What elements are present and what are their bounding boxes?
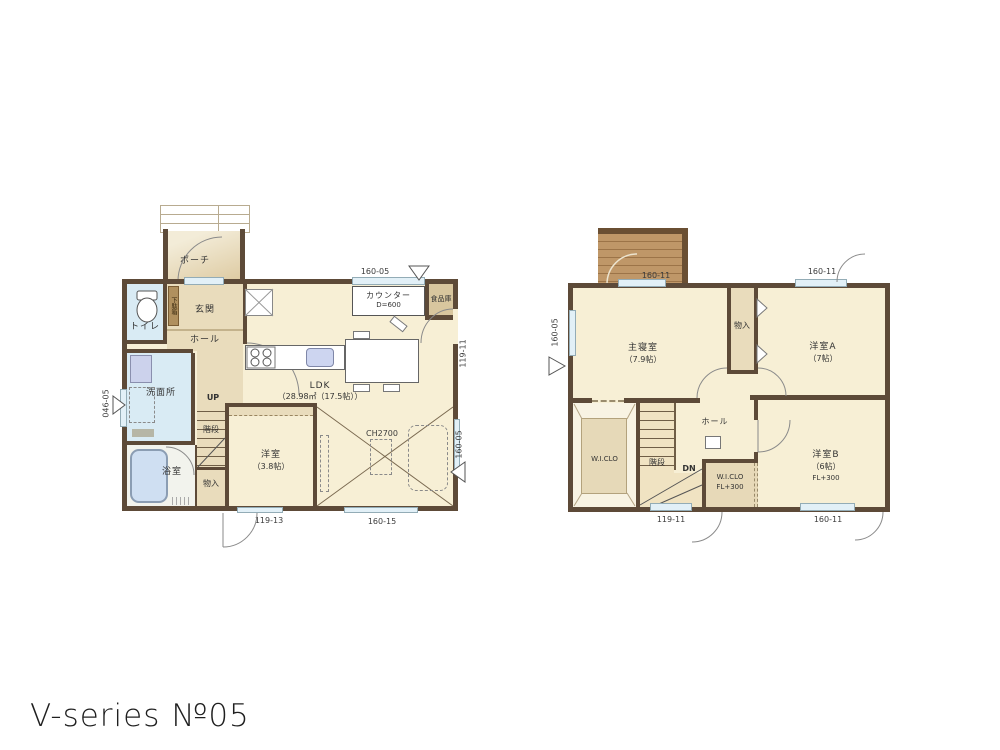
wall xyxy=(754,452,758,463)
chair xyxy=(353,331,370,339)
marker-triangle-icon xyxy=(548,356,566,376)
wall xyxy=(191,353,195,441)
wic-bottom-fl-label: FL+300 xyxy=(702,483,758,492)
dim-right-upper: 119-11 xyxy=(459,332,468,376)
counter-box: カウンター D=600 xyxy=(352,286,425,316)
door-arc-icon xyxy=(222,513,258,549)
window xyxy=(800,503,855,511)
window xyxy=(569,310,576,356)
sink xyxy=(306,348,334,367)
marker-triangle-icon xyxy=(112,395,126,415)
western-room-name: 洋室 xyxy=(261,450,281,460)
porch-label: ポーチ xyxy=(162,256,228,268)
door-arc-icon xyxy=(697,368,727,398)
door-arc-icon xyxy=(692,512,722,542)
door-arc-icon xyxy=(758,420,790,452)
counter-label: カウンター xyxy=(353,290,424,301)
wall xyxy=(122,340,167,344)
room-a-size: （7帖） xyxy=(808,354,837,363)
step-platform xyxy=(705,436,721,449)
master-bedroom-label: 主寝室（7.9帖） xyxy=(603,343,683,366)
door-arc-icon xyxy=(421,309,453,343)
room-b-name: 洋室B xyxy=(812,450,839,460)
living-table xyxy=(370,439,392,475)
toilet-icon xyxy=(134,289,160,325)
dim-left-2f: 160-05 xyxy=(551,311,560,355)
room-b-label: 洋室B（6帖）FL+300 xyxy=(786,450,866,485)
pantry-label: 食品庫 xyxy=(427,295,455,304)
wic-left-label: W.I.CLO xyxy=(573,455,636,464)
master-bedroom-size: （7.9帖） xyxy=(625,355,662,364)
door-gap xyxy=(453,309,458,344)
stairs-label: 階段 xyxy=(197,425,225,435)
entrance-door xyxy=(184,277,224,285)
chair xyxy=(383,384,400,392)
stove-icon xyxy=(247,347,275,368)
door-arc-icon xyxy=(837,254,865,282)
dim-right-lower: 160-05 xyxy=(455,423,464,467)
stairs-2f-label: 階段 xyxy=(640,458,674,468)
dim-bottom-left-2f: 119-11 xyxy=(647,515,695,524)
door-arc-icon xyxy=(855,512,883,540)
bath-mat xyxy=(132,429,154,437)
dim-left: 046-05 xyxy=(102,382,111,426)
bathroom-label: 浴室 xyxy=(150,467,194,479)
porch-step-divider xyxy=(218,205,219,231)
genkan-label: 玄関 xyxy=(180,305,230,317)
room-a-name: 洋室A xyxy=(809,342,836,352)
washroom-label: 洗面所 xyxy=(132,388,190,400)
wic-bottom-label: W.I.CLO xyxy=(702,473,758,482)
door-arc-icon xyxy=(758,368,786,396)
wall xyxy=(754,400,758,420)
page-title: V-series №05 xyxy=(30,698,250,734)
room-a-label: 洋室A（7帖） xyxy=(783,342,863,365)
ceiling-height-label: CH2700 xyxy=(360,429,404,438)
open-wall-dashed xyxy=(592,400,624,402)
marker-triangle-icon xyxy=(408,265,430,281)
dim-top: 160-05 xyxy=(345,267,405,276)
wall xyxy=(240,229,245,284)
bifold-door-icon xyxy=(756,298,768,318)
window xyxy=(618,279,666,287)
second-floor-plan: 160-11 物入 主寝室（7.9帖） W.I.CLO 階段 xyxy=(545,222,900,557)
hall-2f-label: ホール xyxy=(695,417,735,427)
shoe-cabinet: 下駄箱 xyxy=(168,286,179,326)
vanity xyxy=(130,355,152,383)
porch-steps xyxy=(160,205,250,233)
ldk-label: LDK xyxy=(280,381,360,393)
hall-label: ホール xyxy=(167,335,243,347)
wall xyxy=(727,370,758,374)
window xyxy=(344,507,418,513)
room-b-fl: FL+300 xyxy=(812,474,839,482)
dim-bottom-right: 160-15 xyxy=(356,517,408,526)
window xyxy=(650,503,692,511)
counter-depth-label: D=600 xyxy=(353,301,424,309)
refrigerator-x-mark xyxy=(245,289,273,316)
marker-triangle-icon xyxy=(450,461,466,483)
western-room-size: （3.8帖） xyxy=(253,462,290,471)
dining-table xyxy=(345,339,419,383)
tv-board xyxy=(320,435,329,492)
bifold-door-icon xyxy=(756,344,768,364)
toilet-label: トイレ xyxy=(125,322,165,334)
floor-plan-canvas: ポーチ トイレ 下駄箱 玄関 ホール 洗面所 xyxy=(0,0,1000,750)
closet-strip xyxy=(229,407,313,416)
stair-rail-line xyxy=(674,403,676,470)
stairs-up-label: UP xyxy=(198,393,228,403)
ldk-size-label: （28.98㎡（17.5帖）） xyxy=(235,392,405,402)
dim-bottom-right-2f: 160-11 xyxy=(803,515,853,524)
first-floor-plan: ポーチ トイレ 下駄箱 玄関 ホール 洗面所 xyxy=(120,203,472,553)
stairs-down-label: DN xyxy=(678,464,700,474)
sofa xyxy=(408,425,448,491)
bath-drain-grid xyxy=(172,497,192,505)
master-bedroom-name: 主寝室 xyxy=(628,343,658,353)
western-room-label: 洋室（3.8帖） xyxy=(229,450,313,473)
room-b-size: （6帖） xyxy=(811,462,840,471)
stair-break-line xyxy=(197,438,225,468)
closet-label: 物入 xyxy=(727,321,757,331)
storage-label: 物入 xyxy=(197,479,225,489)
